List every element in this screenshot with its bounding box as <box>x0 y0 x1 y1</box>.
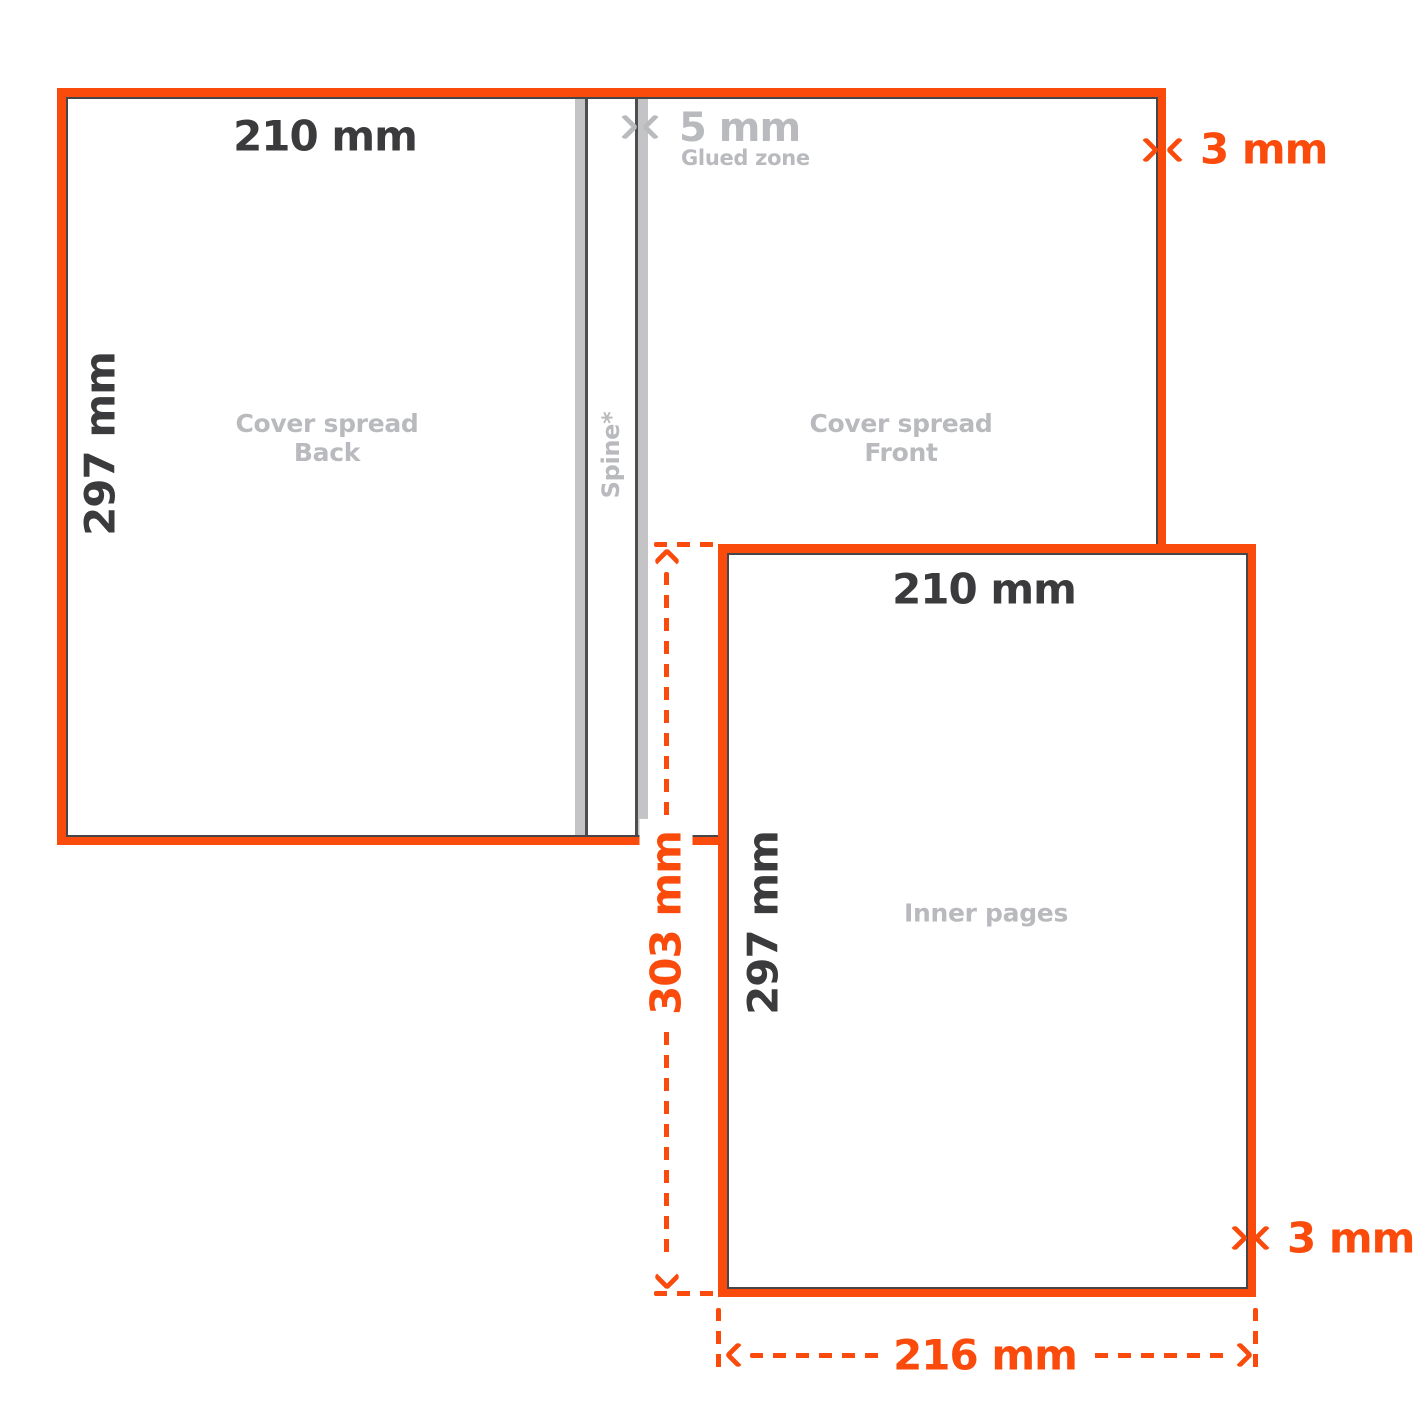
arrow-right-icon <box>1227 1342 1254 1369</box>
arrow-left-icon <box>725 1342 752 1369</box>
glued-zone-strip <box>635 99 648 835</box>
inner-bleed-arrow-left-icon <box>1253 1225 1280 1252</box>
cover-height-label: 297 mm <box>76 352 125 536</box>
cover-front-label: Cover spread Front <box>809 409 992 467</box>
cover-bleed-label: 3 mm <box>1200 125 1327 174</box>
inner-height-label: 297 mm <box>739 831 788 1015</box>
cover-front-label-line1: Cover spread <box>809 409 992 438</box>
dim-total-height-top-connector <box>654 542 714 547</box>
cover-back-label-line1: Cover spread <box>235 409 418 438</box>
dim-total-height-bottom-connector <box>654 1291 716 1296</box>
total-height-label: 303 mm <box>640 819 693 1027</box>
spine-label: Spine* <box>597 412 625 499</box>
dim-total-width-right-extension <box>1253 1308 1258 1372</box>
cover-bleed-arrow-left-icon <box>1166 137 1193 164</box>
spine-fold-strip-left <box>575 99 588 835</box>
cover-width-label: 210 mm <box>233 112 417 161</box>
cover-back-label: Cover spread Back <box>235 409 418 467</box>
cover-back-label-line2: Back <box>294 438 360 467</box>
total-width-label: 216 mm <box>881 1329 1089 1382</box>
cover-front-label-line2: Front <box>864 438 937 467</box>
dim-total-width-left-extension <box>716 1308 721 1372</box>
print-template-diagram: 303 mm 216 mm 210 mm 297 mm Cover spread… <box>0 0 1417 1417</box>
inner-width-label: 210 mm <box>892 565 1076 614</box>
inner-pages-label: Inner pages <box>904 899 1068 928</box>
arrow-down-icon <box>654 1264 681 1291</box>
glued-zone-size-label: 5 mm <box>679 105 800 151</box>
glued-zone-name-label: Glued zone <box>681 146 810 170</box>
inner-bleed-label: 3 mm <box>1287 1214 1414 1263</box>
